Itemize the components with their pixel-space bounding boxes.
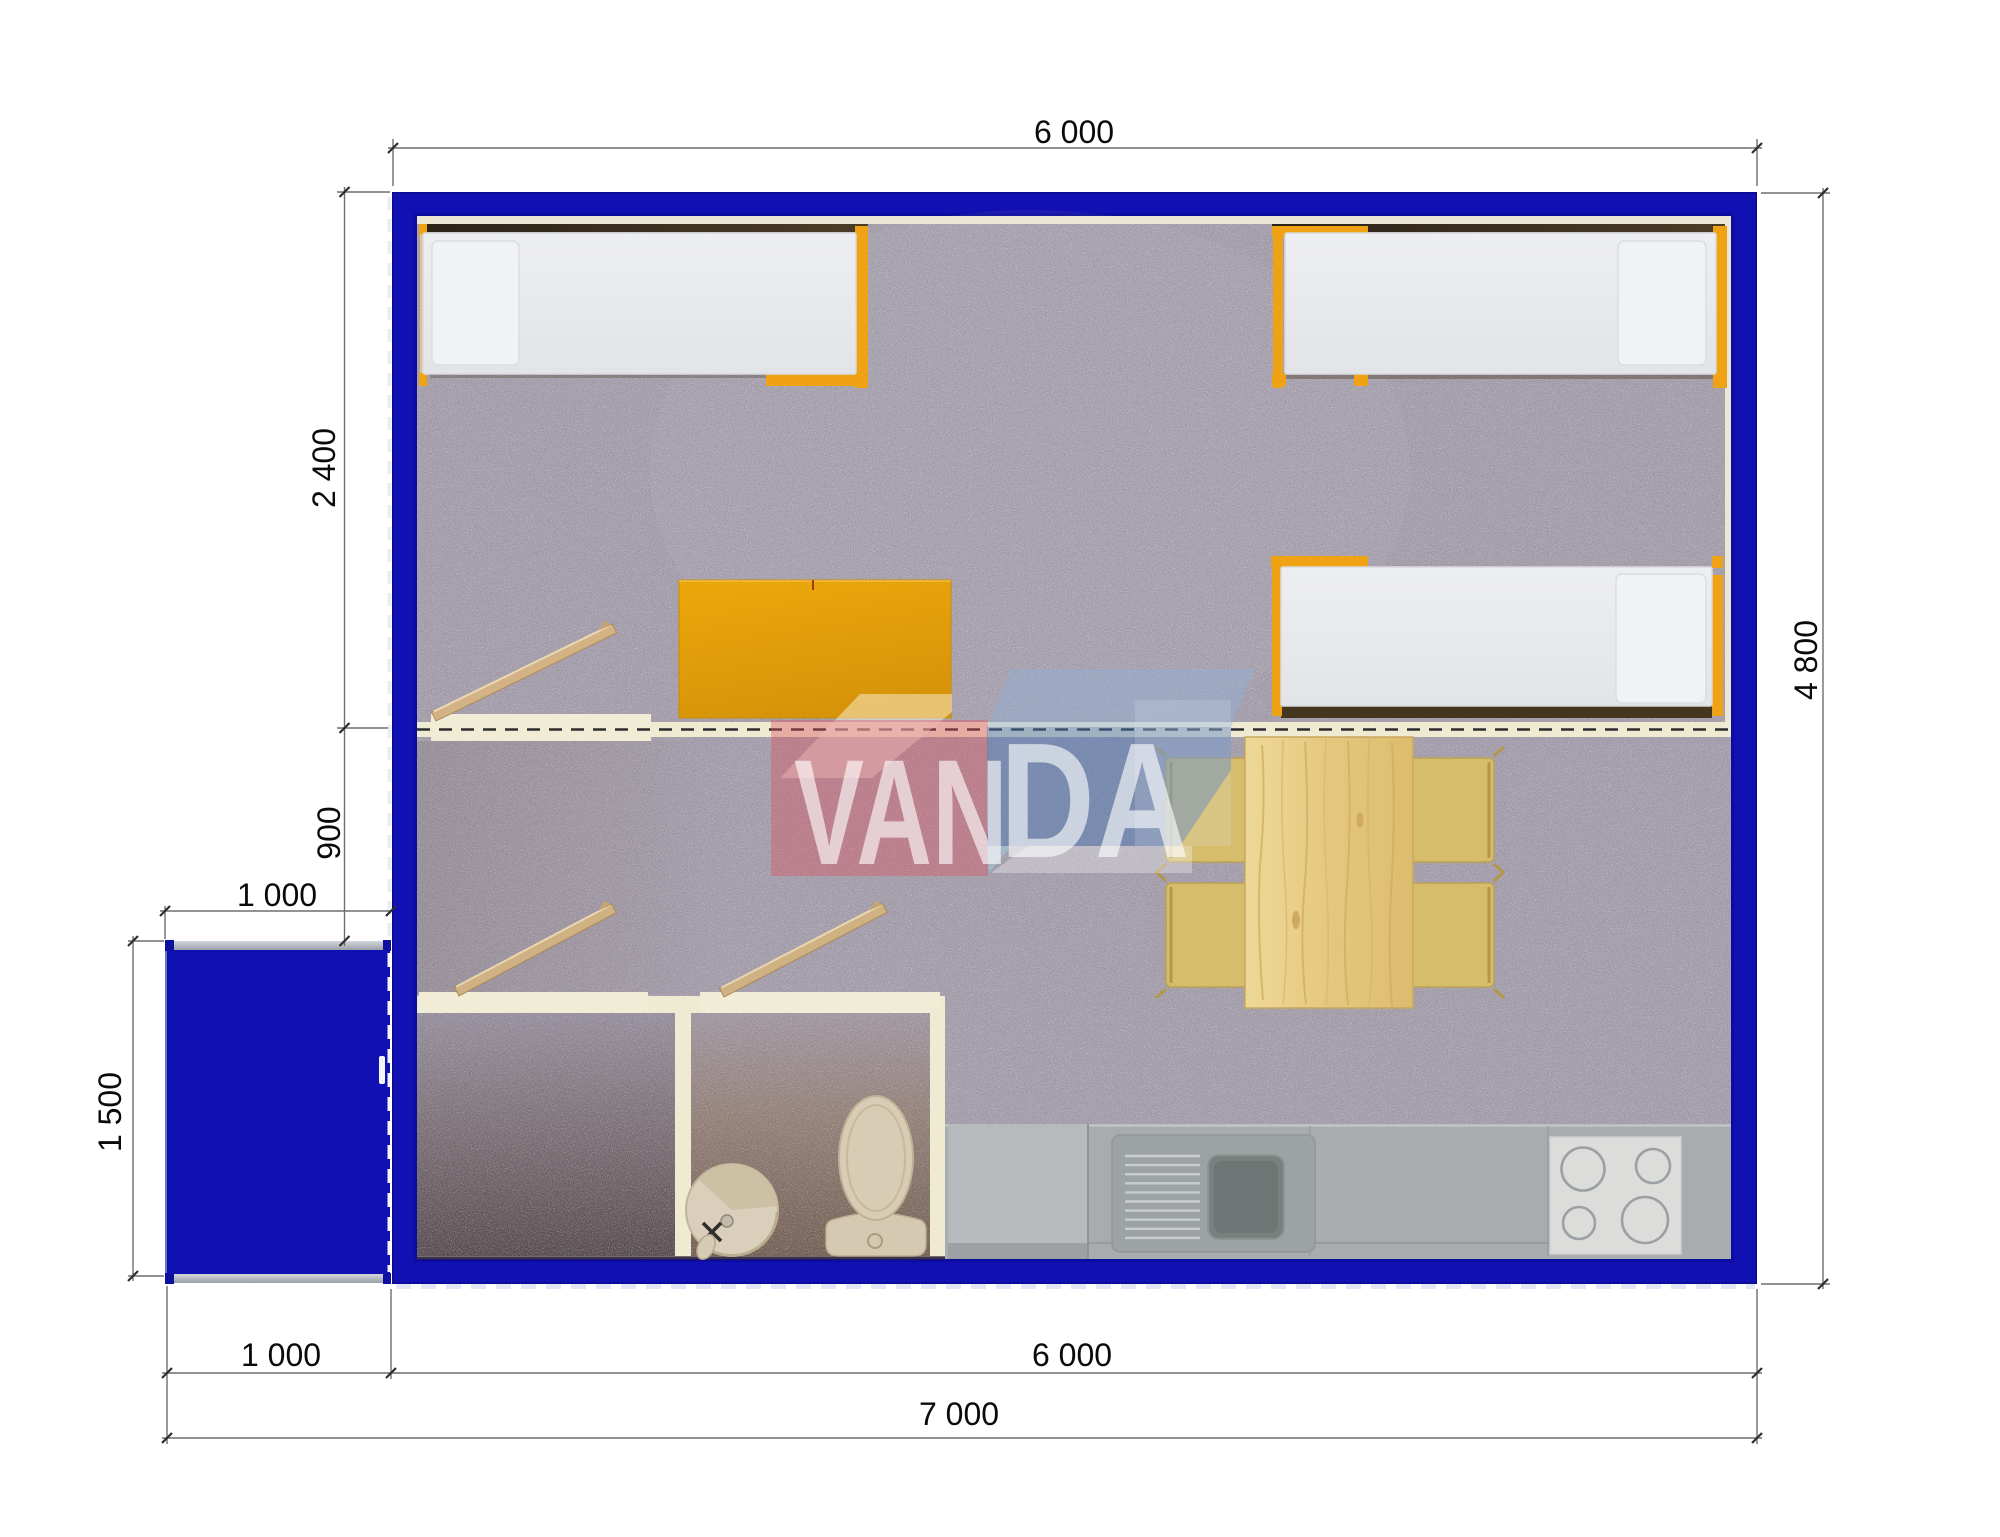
svg-text:DA: DA bbox=[1000, 710, 1189, 892]
svg-text:6 000: 6 000 bbox=[1032, 1337, 1112, 1373]
svg-text:7 000: 7 000 bbox=[919, 1396, 999, 1432]
svg-text:1 000: 1 000 bbox=[237, 877, 317, 913]
svg-text:900: 900 bbox=[311, 806, 347, 859]
svg-text:4 800: 4 800 bbox=[1788, 620, 1824, 700]
svg-text:1 000: 1 000 bbox=[241, 1337, 321, 1373]
svg-text:6 000: 6 000 bbox=[1034, 114, 1114, 150]
svg-text:2 400: 2 400 bbox=[306, 428, 342, 508]
svg-text:1 500: 1 500 bbox=[92, 1072, 128, 1152]
svg-text:VAN: VAN bbox=[794, 730, 1008, 897]
